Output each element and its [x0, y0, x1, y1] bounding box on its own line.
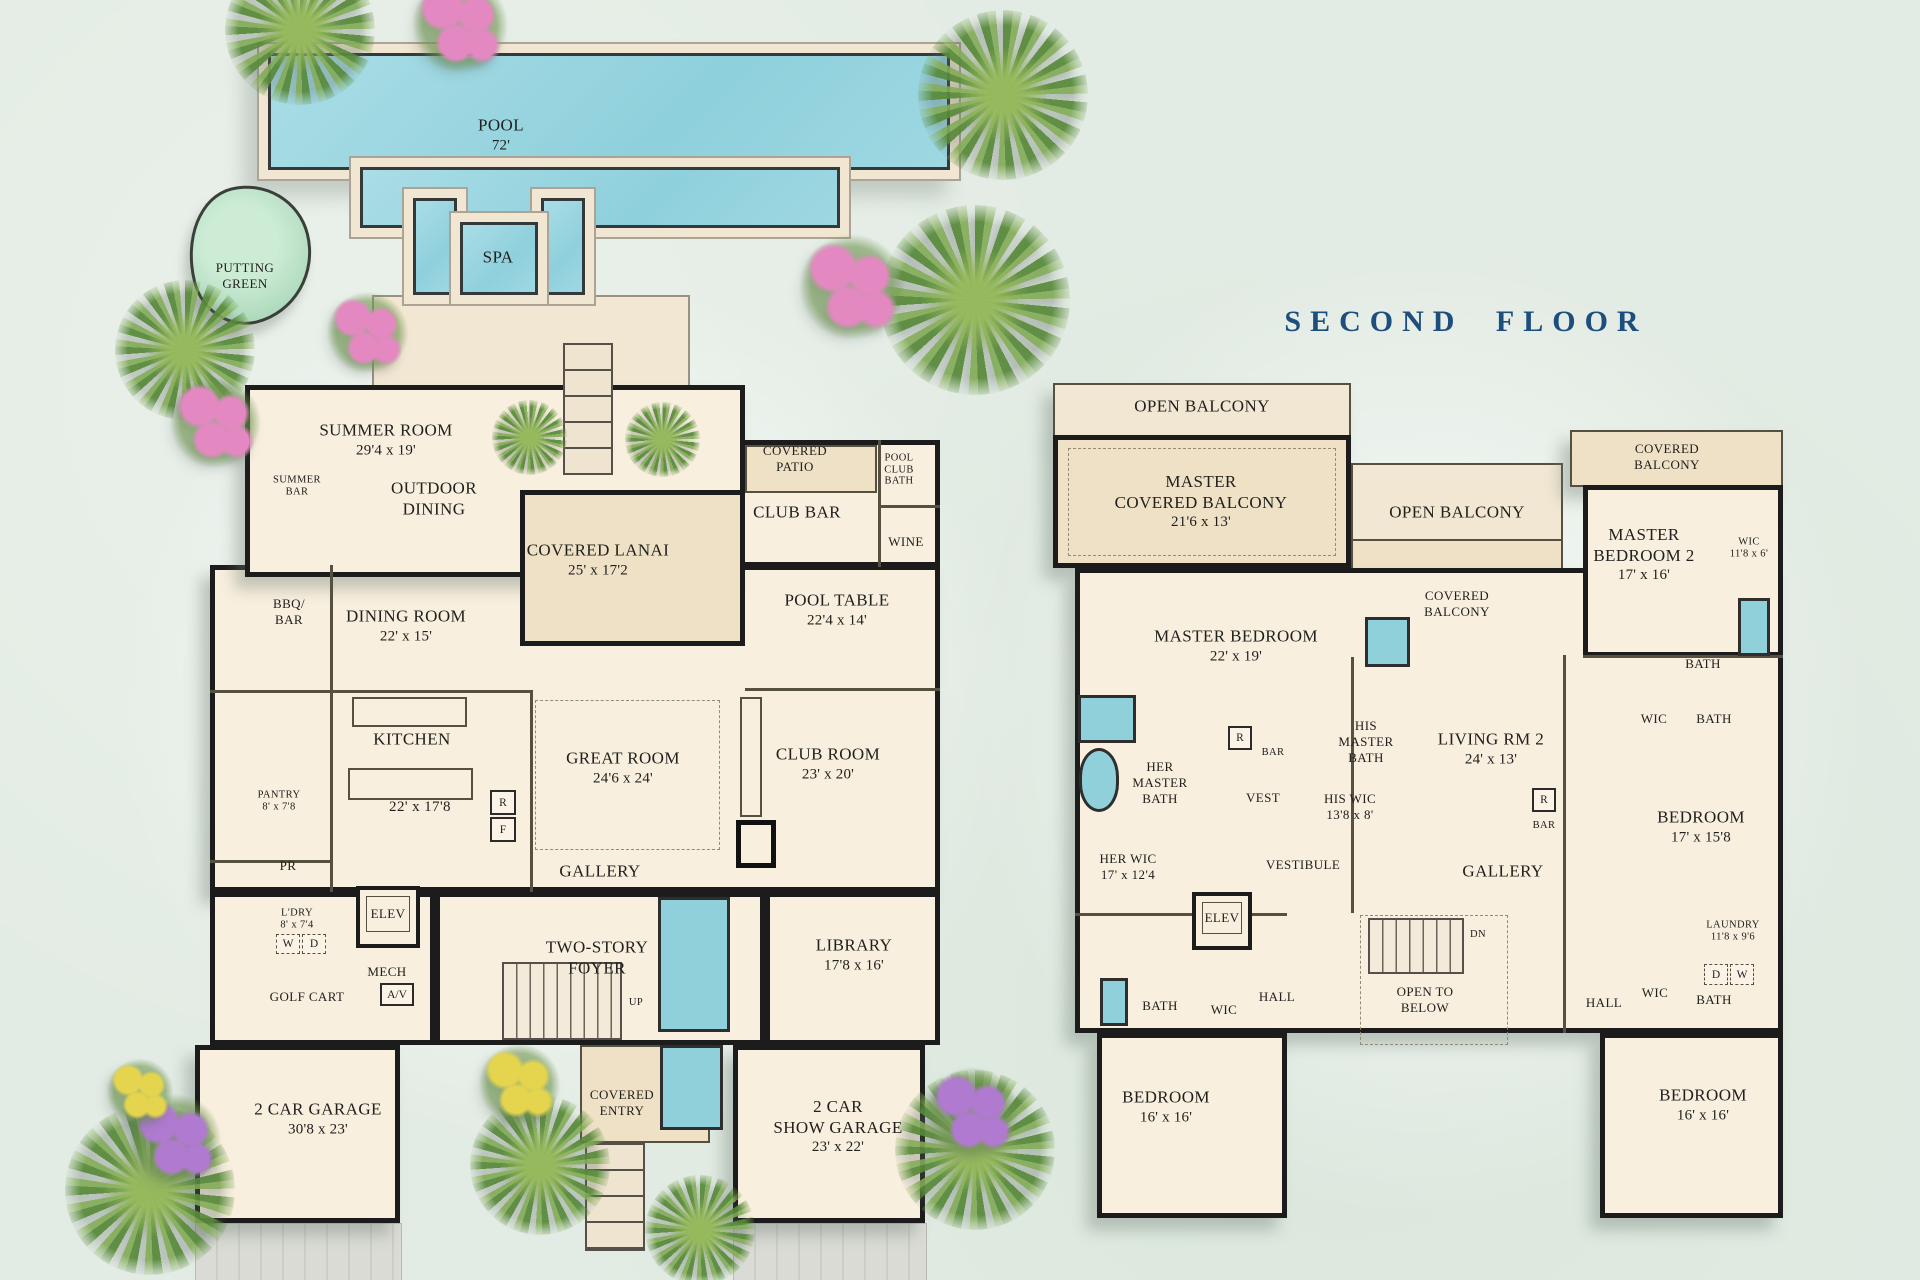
spa-label: SPA: [483, 248, 514, 269]
kitchen-dim-label: 22' x 17'8: [389, 798, 451, 816]
her-tub: [1079, 748, 1119, 812]
bedroom-br-label: BEDROOM16' x 16': [1659, 1085, 1747, 1124]
pool: [268, 53, 950, 170]
bar-fridge-left-tag: R: [1228, 726, 1252, 750]
fridge-tag: R: [490, 790, 516, 815]
wall-pr: [210, 860, 330, 863]
wall-pooltable-bottom: [745, 688, 940, 691]
covered-patio-label: COVERED PATIO: [763, 443, 827, 475]
garage-label: 2 CAR GARAGE30'8 x 23': [254, 1099, 382, 1138]
open-to-below-stairs: [1368, 918, 1464, 974]
bath-r1-label: BATH: [1696, 711, 1732, 727]
pool-table-label: POOL TABLE22'4 x 14': [784, 590, 889, 629]
dryer-tag-sf: D: [1704, 964, 1728, 985]
bath-top-right-label: BATH: [1685, 656, 1721, 672]
bar-left-label: BAR: [1262, 747, 1285, 759]
kitchen-island-2: [348, 768, 473, 800]
purple-flowers-icon: [925, 1065, 1020, 1160]
mech-label: MECH: [367, 964, 406, 980]
laundry-label-sf: LAUNDRY11'8 x 9'6: [1706, 919, 1760, 942]
pool-courtyard: [372, 295, 690, 389]
covered-lanai-label: COVERED LANAI25' x 17'2: [527, 540, 670, 579]
covered-balcony-right-label: COVERED BALCONY: [1634, 441, 1700, 473]
covered-entry-label: COVERED ENTRY: [590, 1087, 654, 1119]
shrub-icon: [625, 402, 700, 477]
wic-r2-label: WIC: [1642, 985, 1668, 1001]
living-rm2-label: LIVING RM 224' x 13': [1438, 729, 1544, 768]
laundry-label-ff: L'DRY8' x 7'4: [280, 907, 313, 930]
wine-label: WINE: [888, 534, 924, 550]
summer-room-label: SUMMER ROOM29'4 x 19': [319, 420, 452, 459]
pink-flowers-icon: [797, 232, 907, 342]
palm-icon: [645, 1175, 755, 1280]
master-bedroom2-label: MASTER BEDROOM 217' x 16': [1593, 525, 1694, 585]
bbq-bar-label: BBQ/ BAR: [273, 596, 305, 628]
vest-label: VEST: [1246, 790, 1280, 806]
gallery-label: GALLERY: [559, 862, 640, 883]
bedroom-right-label: BEDROOM17' x 15'8: [1657, 807, 1745, 846]
club-bar-label: CLUB BAR: [753, 503, 841, 524]
wall-kitchen-top: [210, 690, 532, 693]
hall-left-label: HALL: [1259, 989, 1295, 1005]
freezer-tag: F: [490, 817, 516, 842]
bar-fridge-right-tag: R: [1532, 788, 1556, 812]
club-room-label: CLUB ROOM23' x 20': [776, 744, 880, 783]
summer-bar-label: SUMMER BAR: [273, 474, 321, 497]
open-balcony-top-label: OPEN BALCONY: [1134, 397, 1270, 418]
bath-r2-label: BATH: [1696, 992, 1732, 1008]
pink-flowers-icon: [325, 290, 410, 375]
wall-sf-right-wing: [1563, 655, 1566, 1033]
wall-kitchen-right: [530, 690, 533, 892]
pool-step-right: [541, 198, 585, 295]
yellow-flowers-icon: [105, 1057, 175, 1127]
pool-step-left: [413, 198, 457, 295]
open-to-below-label: OPEN TO BELOW: [1397, 984, 1454, 1016]
bedroom-bl-label: BEDROOM16' x 16': [1122, 1087, 1210, 1126]
shrub-icon: [492, 400, 567, 475]
great-room-label: GREAT ROOM24'6 x 24': [566, 748, 680, 787]
wic-left-label: WIC: [1211, 1002, 1237, 1018]
outdoor-dining-label: OUTDOOR DINING: [391, 478, 477, 519]
bath-left-shower: [1100, 978, 1128, 1026]
vestibule-label: VESTIBULE: [1266, 857, 1340, 873]
bar-right-label: BAR: [1533, 820, 1556, 832]
bedroom-br-block: [1600, 1033, 1783, 1218]
wall-wine-divide: [878, 505, 940, 508]
dining-room-label: DINING ROOM22' x 15': [346, 606, 466, 645]
golf-cart-label: GOLF CART: [270, 989, 345, 1005]
water-feature-upper: [658, 897, 730, 1032]
pink-flowers-icon: [168, 375, 263, 470]
water-feature-lower: [660, 1045, 723, 1130]
master-covered-balcony-label: MASTER COVERED BALCONY21'6 x 13': [1115, 472, 1288, 532]
dn-label: DN: [1470, 929, 1486, 941]
kitchen-island-1: [352, 697, 467, 727]
library-label: LIBRARY17'8 x 16': [816, 935, 892, 974]
wic-mb2-label: WIC11'8 x 6': [1730, 536, 1769, 559]
bath2-tub: [1738, 598, 1770, 656]
driveway-left: [195, 1223, 402, 1280]
wall-left-column: [330, 565, 333, 892]
washer-tag-sf: W: [1730, 964, 1754, 985]
up-label: UP: [629, 997, 643, 1009]
club-room-console: [740, 697, 762, 817]
covered-balcony-mid-label: COVERED BALCONY: [1424, 588, 1490, 620]
her-shower: [1078, 695, 1136, 743]
floor-plan-canvas: POOL72' SPA PUTTING GREEN SUMMER ROOM29'…: [0, 0, 1920, 1280]
palm-icon: [918, 10, 1088, 180]
his-master-bath-label: HIS MASTER BATH: [1338, 718, 1393, 766]
pantry-label: PANTRY8' x 7'8: [258, 789, 301, 812]
yellow-flowers-icon: [477, 1042, 562, 1127]
master-bedroom-label: MASTER BEDROOM22' x 19': [1154, 626, 1318, 665]
show-garage-label: 2 CAR SHOW GARAGE23' x 22': [773, 1097, 902, 1157]
wall-sf-center-left: [1351, 657, 1354, 913]
bath-left-label: BATH: [1142, 998, 1178, 1014]
his-shower: [1365, 617, 1410, 667]
washer-tag-ff: W: [276, 934, 300, 954]
elevator-label-sf: ELEV: [1205, 910, 1240, 926]
wic-r1-label: WIC: [1641, 711, 1667, 727]
elevator-label-ff: ELEV: [371, 906, 406, 922]
open-balcony-mid-label: OPEN BALCONY: [1389, 503, 1525, 524]
av-tag: A/V: [380, 983, 414, 1006]
club-room-fireplace: [736, 820, 776, 868]
driveway-right: [733, 1223, 927, 1280]
wall-sf-left-corridor: [1075, 913, 1287, 916]
courtyard-steps: [563, 343, 613, 475]
palm-icon: [880, 205, 1070, 395]
hall-right-label: HALL: [1586, 995, 1622, 1011]
kitchen-label: KITCHEN: [373, 730, 450, 751]
gallery-label-sf: GALLERY: [1462, 862, 1543, 883]
wall-bath-wine: [878, 440, 881, 567]
her-master-bath-label: HER MASTER BATH: [1132, 759, 1187, 807]
pool-label: POOL72': [478, 115, 524, 154]
foyer-label: TWO-STORY FOYER: [546, 937, 648, 978]
pool-club-bath-label: POOL CLUB BATH: [884, 453, 914, 488]
putting-green-label: PUTTING GREEN: [216, 260, 274, 292]
powder-room-label: PR: [280, 858, 297, 874]
his-wic-label: HIS WIC13'8 x 8': [1324, 791, 1376, 823]
dryer-tag-ff: D: [302, 934, 326, 954]
second-floor-title: SECOND FLOOR: [1284, 305, 1647, 339]
her-wic-label: HER WIC17' x 12'4: [1099, 851, 1156, 883]
